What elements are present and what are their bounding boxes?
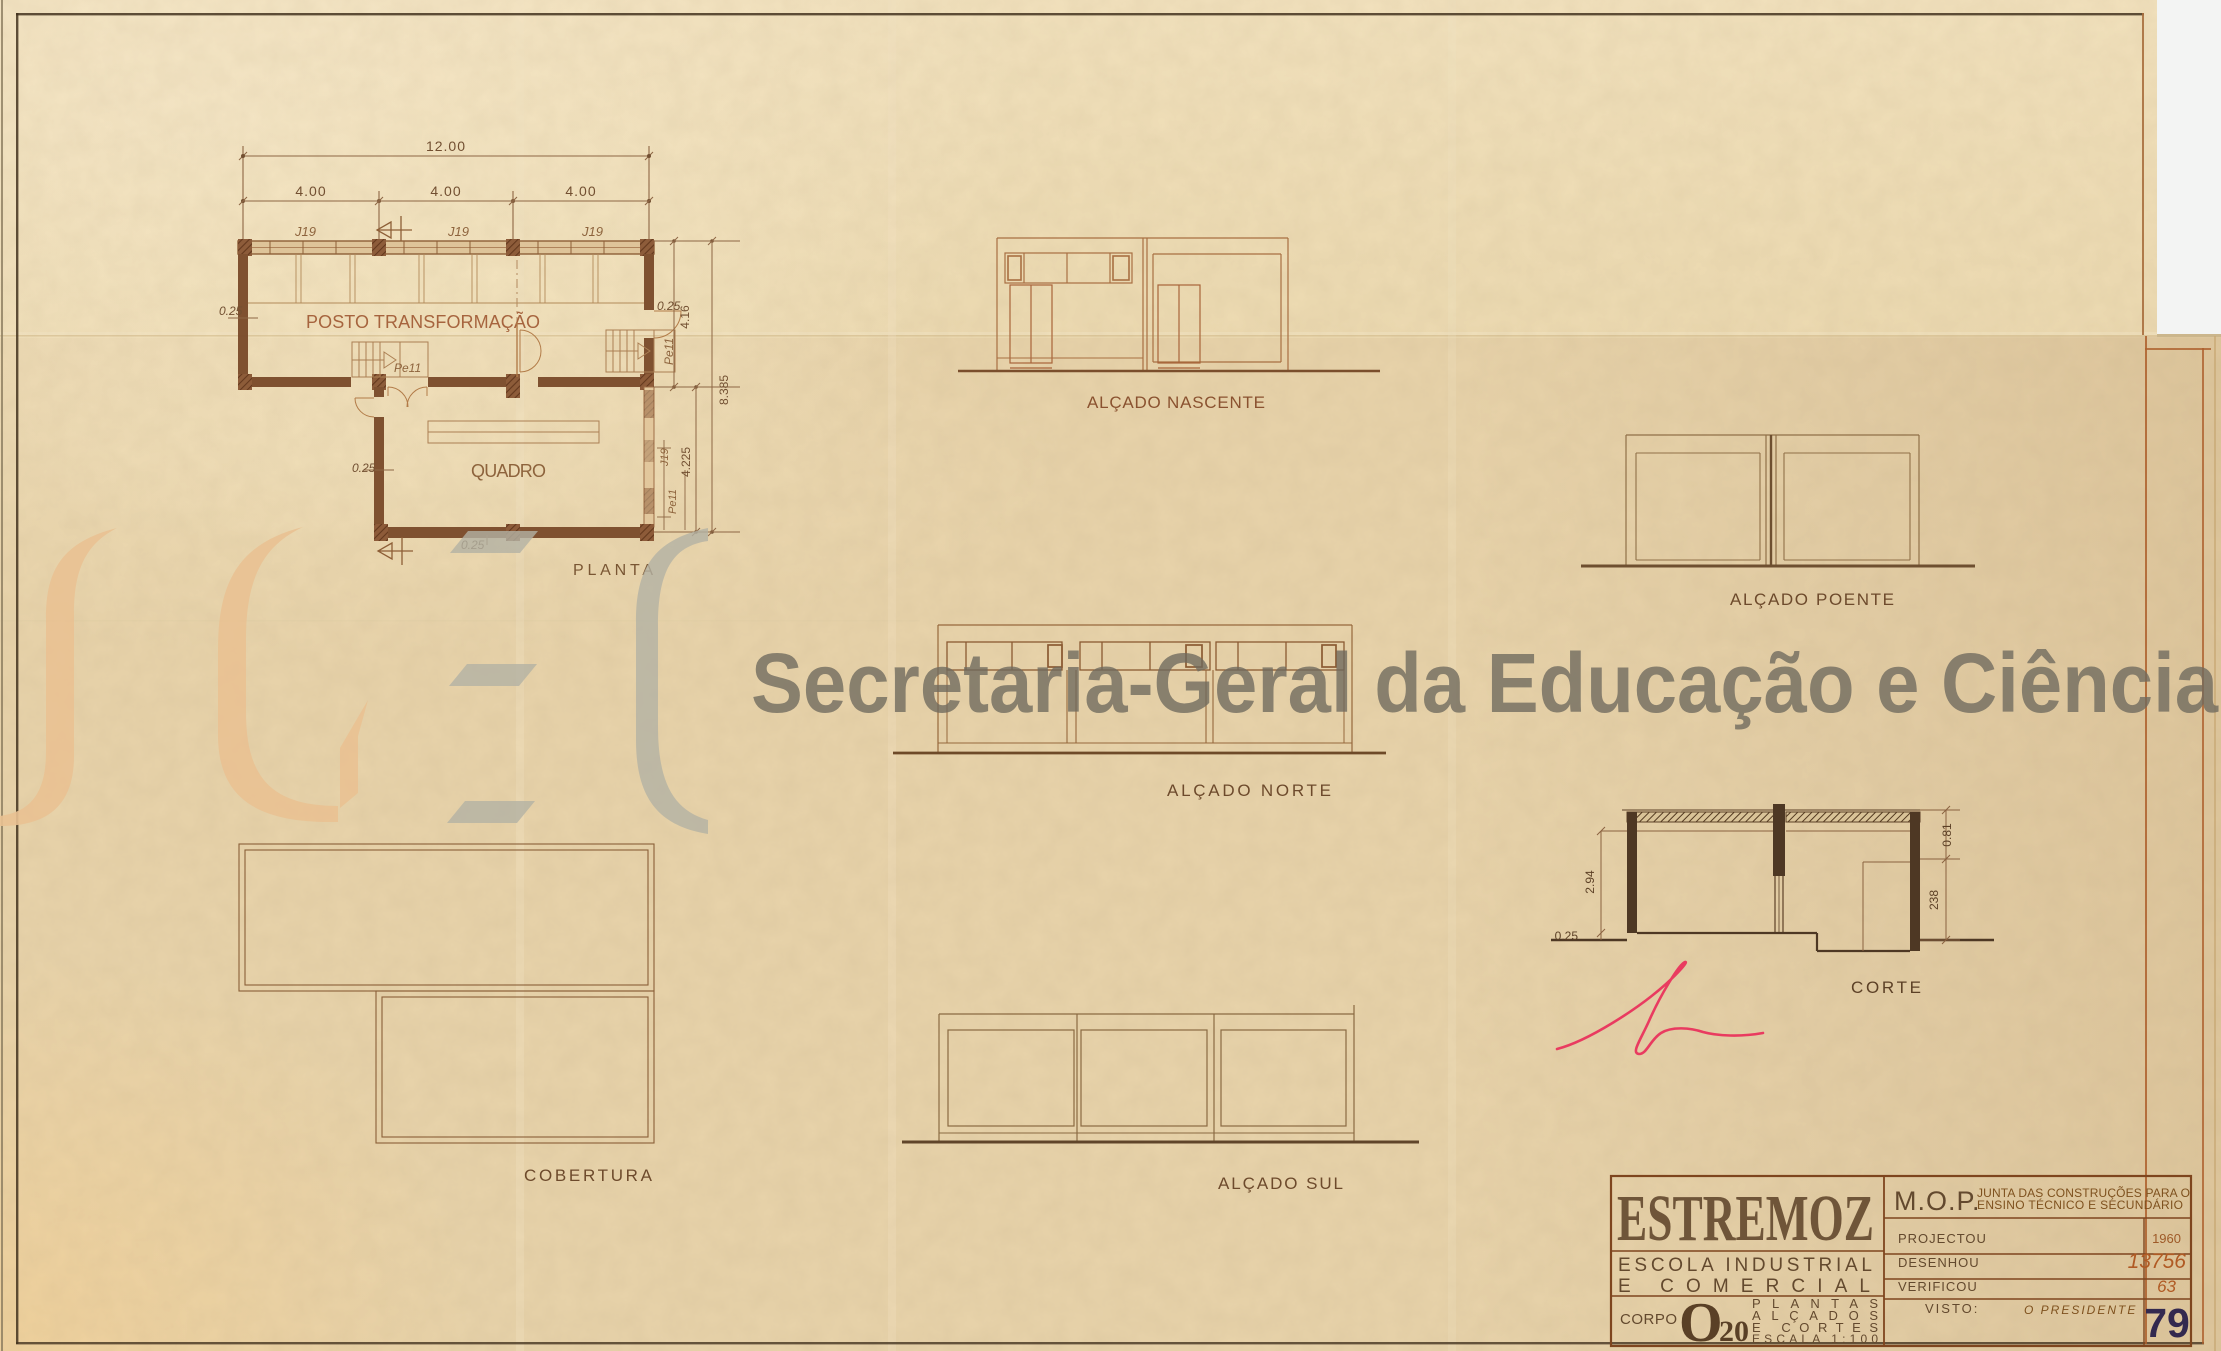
svg-text:ALÇADO SUL: ALÇADO SUL [1218, 1174, 1343, 1193]
svg-text:ESTREMOZ: ESTREMOZ [1617, 1182, 1874, 1255]
svg-text:0.25: 0.25 [352, 461, 376, 475]
svg-text:8.385: 8.385 [717, 375, 731, 405]
svg-text:VERIFICOU: VERIFICOU [1898, 1279, 1978, 1294]
svg-text:CORTE: CORTE [1851, 978, 1921, 997]
svg-text:63: 63 [2157, 1277, 2176, 1296]
svg-text:13756: 13756 [2128, 1250, 2187, 1273]
svg-text:Secretaria-Geral da Educação e: Secretaria-Geral da Educação e Ciência [751, 636, 2219, 730]
svg-text:QUADRO: QUADRO [471, 461, 549, 481]
svg-text:Pe11: Pe11 [394, 361, 421, 375]
svg-text:20: 20 [1719, 1315, 1749, 1348]
svg-text:PROJECTOU: PROJECTOU [1898, 1231, 1987, 1246]
svg-text:12.00: 12.00 [426, 138, 466, 154]
svg-text:2.94: 2.94 [1583, 870, 1597, 894]
svg-text:DESENHOU: DESENHOU [1898, 1255, 1980, 1270]
svg-text:4.00: 4.00 [295, 183, 326, 199]
svg-text:1960: 1960 [2152, 1231, 2181, 1246]
svg-text:J19: J19 [659, 448, 671, 467]
svg-text:CORPO: CORPO [1620, 1311, 1678, 1328]
svg-text:COBERTURA: COBERTURA [524, 1166, 653, 1185]
svg-text:ALÇADO NASCENTE: ALÇADO NASCENTE [1087, 393, 1265, 412]
svg-text:0.25: 0.25 [219, 304, 243, 318]
svg-text:79: 79 [2144, 1300, 2190, 1346]
svg-text:Pe11: Pe11 [667, 489, 679, 514]
svg-text:POSTO TRANSFORMAÇÃO: POSTO TRANSFORMAÇÃO [306, 311, 544, 332]
svg-text:0.81: 0.81 [1940, 823, 1954, 847]
svg-text:O: O [1679, 1292, 1723, 1351]
svg-text:J19: J19 [581, 224, 603, 239]
svg-text:4.00: 4.00 [565, 183, 596, 199]
svg-text:238: 238 [1927, 890, 1941, 910]
svg-text:J19: J19 [447, 224, 469, 239]
svg-text:4.225: 4.225 [679, 447, 693, 477]
svg-text:4.00: 4.00 [430, 183, 461, 199]
svg-text:VISTO:: VISTO: [1925, 1301, 1979, 1316]
svg-text:M.O.P.: M.O.P. [1894, 1186, 1981, 1216]
svg-text:4.16: 4.16 [678, 305, 692, 329]
svg-text:O PRESIDENTE: O PRESIDENTE [2024, 1303, 2137, 1317]
svg-text:0.25: 0.25 [1555, 929, 1579, 943]
svg-text:ENSINO TÉCNICO E SECUNDÁRIO: ENSINO TÉCNICO E SECUNDÁRIO [1977, 1197, 2183, 1212]
svg-text:J19: J19 [294, 224, 316, 239]
